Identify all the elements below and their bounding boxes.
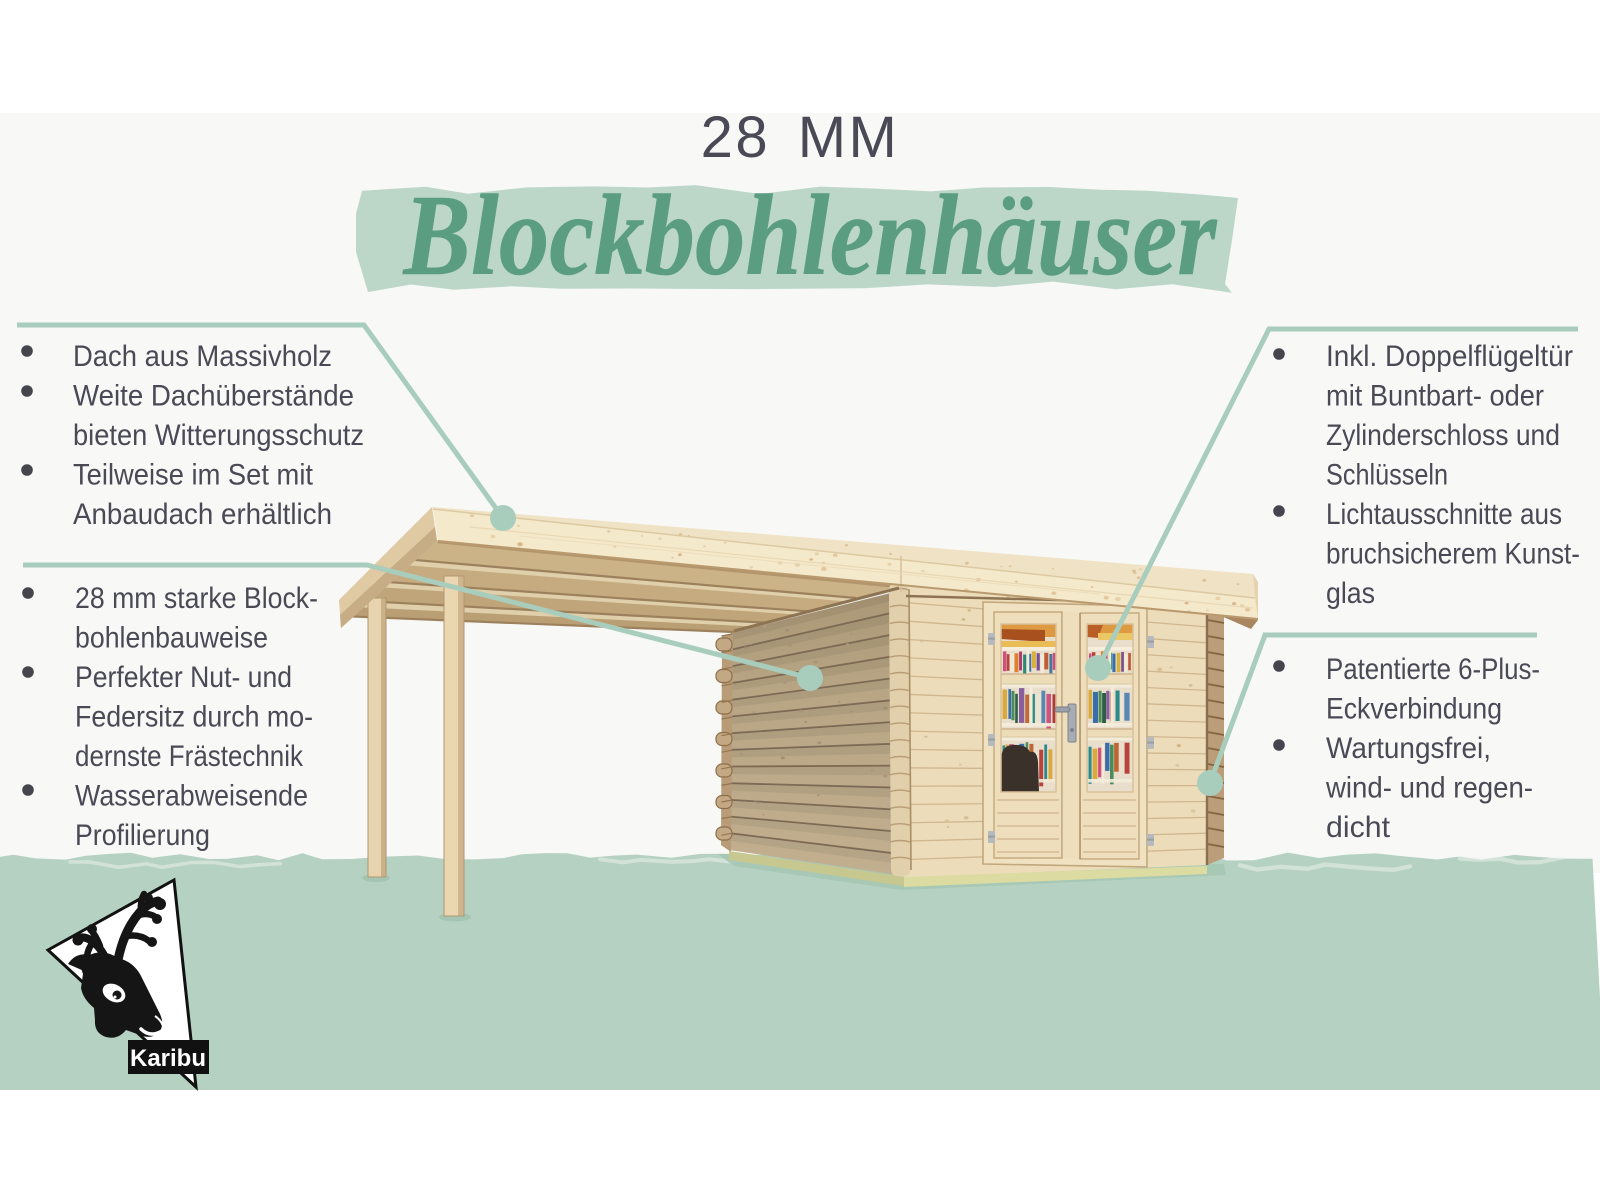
svg-text:Lichtausschnitte aus: Lichtausschnitte aus bbox=[1326, 498, 1562, 531]
svg-text:Profilierung: Profilierung bbox=[75, 819, 210, 852]
svg-text:wind- und regen-: wind- und regen- bbox=[1325, 772, 1533, 805]
svg-text:Federsitz durch mo-: Federsitz durch mo- bbox=[75, 701, 313, 734]
svg-text:Dach aus Massivholz: Dach aus Massivholz bbox=[73, 340, 332, 373]
svg-text:mit Buntbart- oder: mit Buntbart- oder bbox=[1326, 380, 1544, 413]
svg-text:Wartungsfrei,: Wartungsfrei, bbox=[1326, 732, 1491, 765]
svg-text:Inkl. Doppelflügeltür: Inkl. Doppelflügeltür bbox=[1326, 340, 1573, 373]
svg-text:Perfekter Nut- und: Perfekter Nut- und bbox=[75, 661, 292, 694]
svg-text:Eckverbindung: Eckverbindung bbox=[1326, 693, 1502, 726]
svg-text:glas: glas bbox=[1326, 577, 1375, 610]
svg-text:Schlüsseln: Schlüsseln bbox=[1326, 459, 1448, 492]
svg-text:Patentierte 6-Plus-: Patentierte 6-Plus- bbox=[1326, 653, 1540, 686]
svg-text:bieten Witterungsschutz: bieten Witterungsschutz bbox=[73, 419, 364, 452]
svg-text:Teilweise im Set mit: Teilweise im Set mit bbox=[73, 459, 314, 492]
svg-text:dernste Frästechnik: dernste Frästechnik bbox=[75, 740, 304, 773]
svg-text:Karibu: Karibu bbox=[130, 1045, 206, 1072]
svg-text:dicht: dicht bbox=[1326, 811, 1391, 844]
svg-text:Weite Dachüberstände: Weite Dachüberstände bbox=[73, 380, 354, 413]
svg-text:28 mm starke Block-: 28 mm starke Block- bbox=[75, 582, 318, 615]
svg-text:bruchsicherem Kunst-: bruchsicherem Kunst- bbox=[1326, 538, 1580, 571]
svg-text:Wasserabweisende: Wasserabweisende bbox=[75, 780, 308, 813]
svg-text:Zylinderschloss und: Zylinderschloss und bbox=[1326, 419, 1560, 452]
svg-text:Blockbohlenhäuser: Blockbohlenhäuser bbox=[402, 172, 1217, 300]
svg-text:Anbaudach erhältlich: Anbaudach erhältlich bbox=[73, 498, 332, 531]
svg-text:28 MM: 28 MM bbox=[701, 105, 900, 170]
svg-text:bohlenbauweise: bohlenbauweise bbox=[75, 622, 268, 655]
